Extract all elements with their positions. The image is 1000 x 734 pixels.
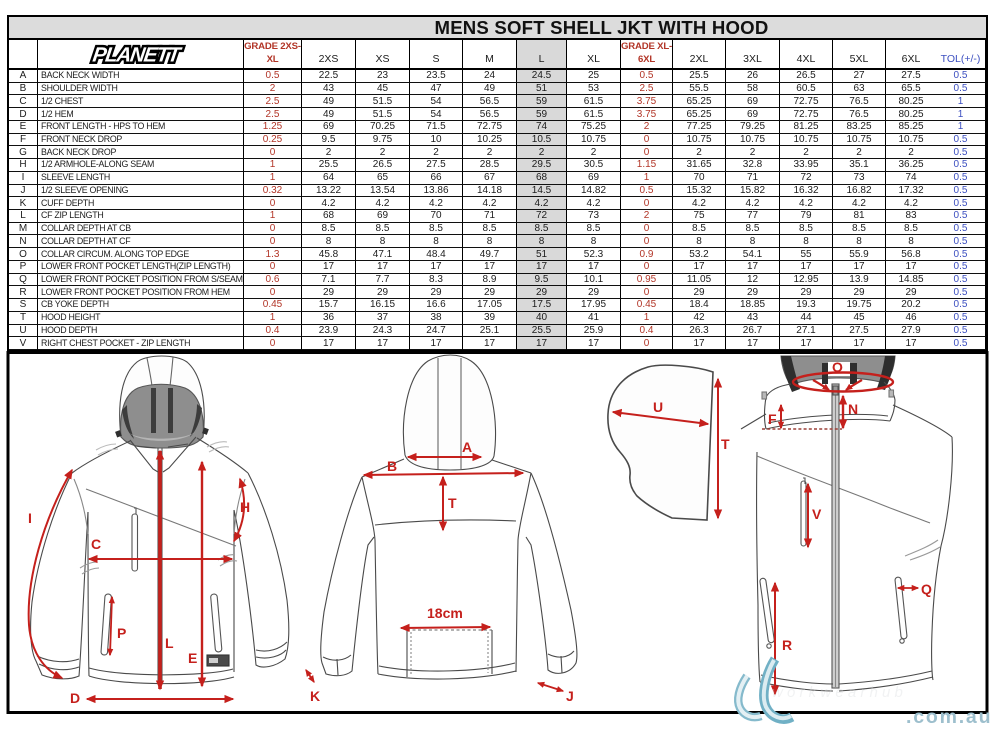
svg-text:P: P (117, 625, 126, 641)
svg-text:Q: Q (921, 581, 932, 597)
svg-text:L: L (165, 635, 174, 651)
svg-text:A: A (462, 439, 472, 455)
svg-text:18cm: 18cm (427, 605, 463, 621)
svg-text:H: H (240, 499, 250, 515)
svg-text:O: O (832, 359, 843, 375)
svg-text:I: I (28, 510, 32, 526)
svg-text:.com.au: .com.au (906, 706, 992, 728)
svg-text:C: C (91, 536, 101, 552)
svg-text:T: T (448, 495, 457, 511)
svg-text:E: E (188, 650, 197, 666)
svg-text:V: V (812, 506, 822, 522)
svg-text:U: U (653, 399, 663, 415)
svg-text:R: R (782, 637, 792, 653)
svg-text:T: T (721, 436, 730, 452)
svg-text:K: K (310, 688, 320, 704)
svg-text:F: F (768, 411, 777, 427)
svg-text:J: J (566, 688, 574, 704)
svg-text:B: B (387, 458, 397, 474)
svg-text:D: D (70, 690, 80, 706)
svg-text:w o r k w e a r h u b: w o r k w e a r h u b (772, 684, 903, 701)
svg-text:N: N (848, 401, 858, 417)
